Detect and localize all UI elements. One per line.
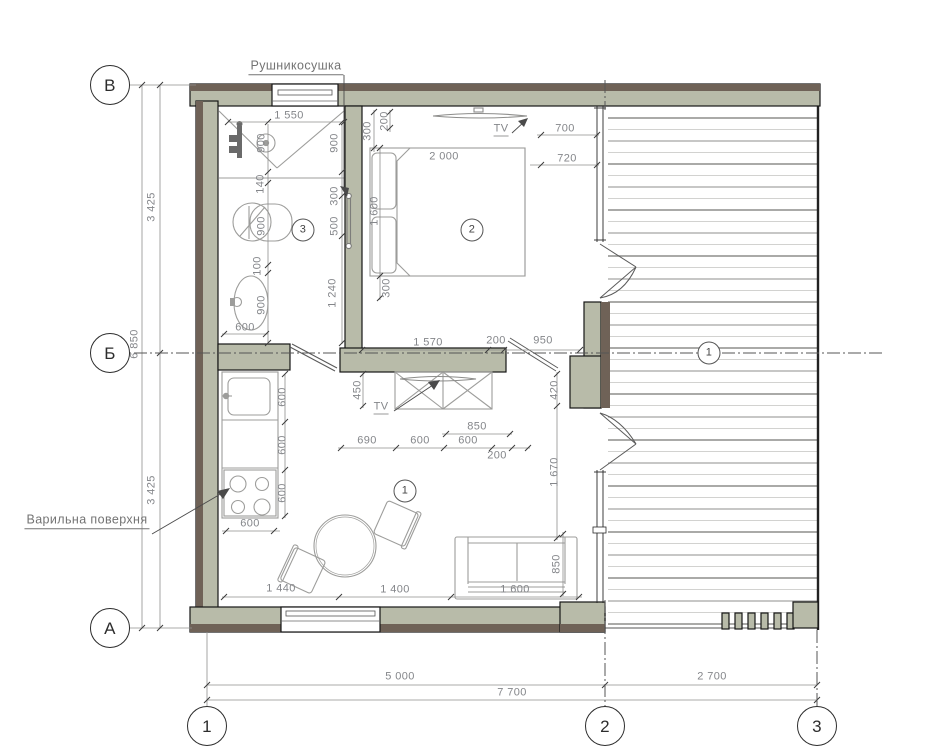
dimension-text: 1 570: [413, 338, 443, 349]
dimension-text: 140: [256, 174, 267, 194]
dimension-text: 900: [257, 216, 268, 236]
dimension-text: 1 600: [500, 585, 530, 596]
axis-col-1: 1: [187, 706, 227, 746]
dimension-text: 600: [240, 519, 260, 530]
dimension-text: 900: [257, 133, 268, 153]
dimension-text: 600: [458, 436, 478, 447]
dimension-text: 100: [253, 256, 264, 276]
dimension-text: 720: [557, 154, 577, 165]
dimension-text: 2 700: [697, 672, 727, 683]
dimension-text: 6 850: [130, 329, 141, 359]
axis-row-a: А: [90, 608, 130, 648]
dimension-text: 850: [552, 554, 563, 574]
dimension-text: 1 550: [274, 111, 304, 122]
room-number-1: 1: [394, 480, 417, 503]
dimension-text: 3 425: [147, 475, 158, 505]
dimension-text: 1 400: [380, 585, 410, 596]
dimension-text: 600: [278, 387, 289, 407]
dimension-text: 600: [278, 435, 289, 455]
dimension-text: 900: [257, 295, 268, 315]
dimension-text: 600: [278, 483, 289, 503]
dimension-text: 200: [487, 451, 507, 462]
dimension-text: 200: [486, 336, 506, 347]
dimension-text: 200: [380, 111, 391, 131]
annotation-layer: ВБА1233211РушникосушкаВарильна поверхняT…: [0, 0, 927, 753]
dimension-text: 600: [235, 323, 255, 334]
dimension-text: 1 240: [328, 278, 339, 308]
axis-ref-1: 1: [698, 342, 721, 365]
label-tv-bedroom: TV: [494, 124, 509, 137]
dimension-text: 1 670: [550, 457, 561, 487]
room-number-3: 3: [292, 219, 315, 242]
dimension-text: 690: [357, 436, 377, 447]
dimension-text: 900: [330, 133, 341, 153]
dimension-text: 450: [353, 380, 364, 400]
floor-plan-canvas: ВБА1233211РушникосушкаВарильна поверхняT…: [0, 0, 927, 753]
label-cooktop: Варильна поверхня: [24, 513, 149, 529]
dimension-text: 850: [467, 422, 487, 433]
dimension-text: 1 440: [266, 584, 296, 595]
dimension-text: 7 700: [497, 688, 527, 699]
axis-col-3: 3: [797, 706, 837, 746]
axis-row-b: Б: [90, 333, 130, 373]
dimension-text: 5 000: [385, 672, 415, 683]
dimension-text: 3 425: [147, 192, 158, 222]
room-number-2: 2: [461, 219, 484, 242]
dimension-text: 420: [550, 380, 561, 400]
dimension-text: 700: [555, 124, 575, 135]
dimension-text: 950: [533, 336, 553, 347]
label-towel-dryer: Рушникосушка: [248, 59, 343, 75]
label-tv-living: TV: [374, 402, 389, 415]
dimension-text: 300: [363, 121, 374, 141]
dimension-text: 2 000: [429, 152, 459, 163]
axis-col-2: 2: [585, 706, 625, 746]
dimension-text: 1 600: [370, 196, 381, 226]
axis-row-v: В: [90, 65, 130, 105]
dimension-text: 500: [330, 216, 341, 236]
dimension-text: 300: [330, 186, 341, 206]
dimension-text: 300: [382, 278, 393, 298]
dimension-text: 600: [410, 436, 430, 447]
